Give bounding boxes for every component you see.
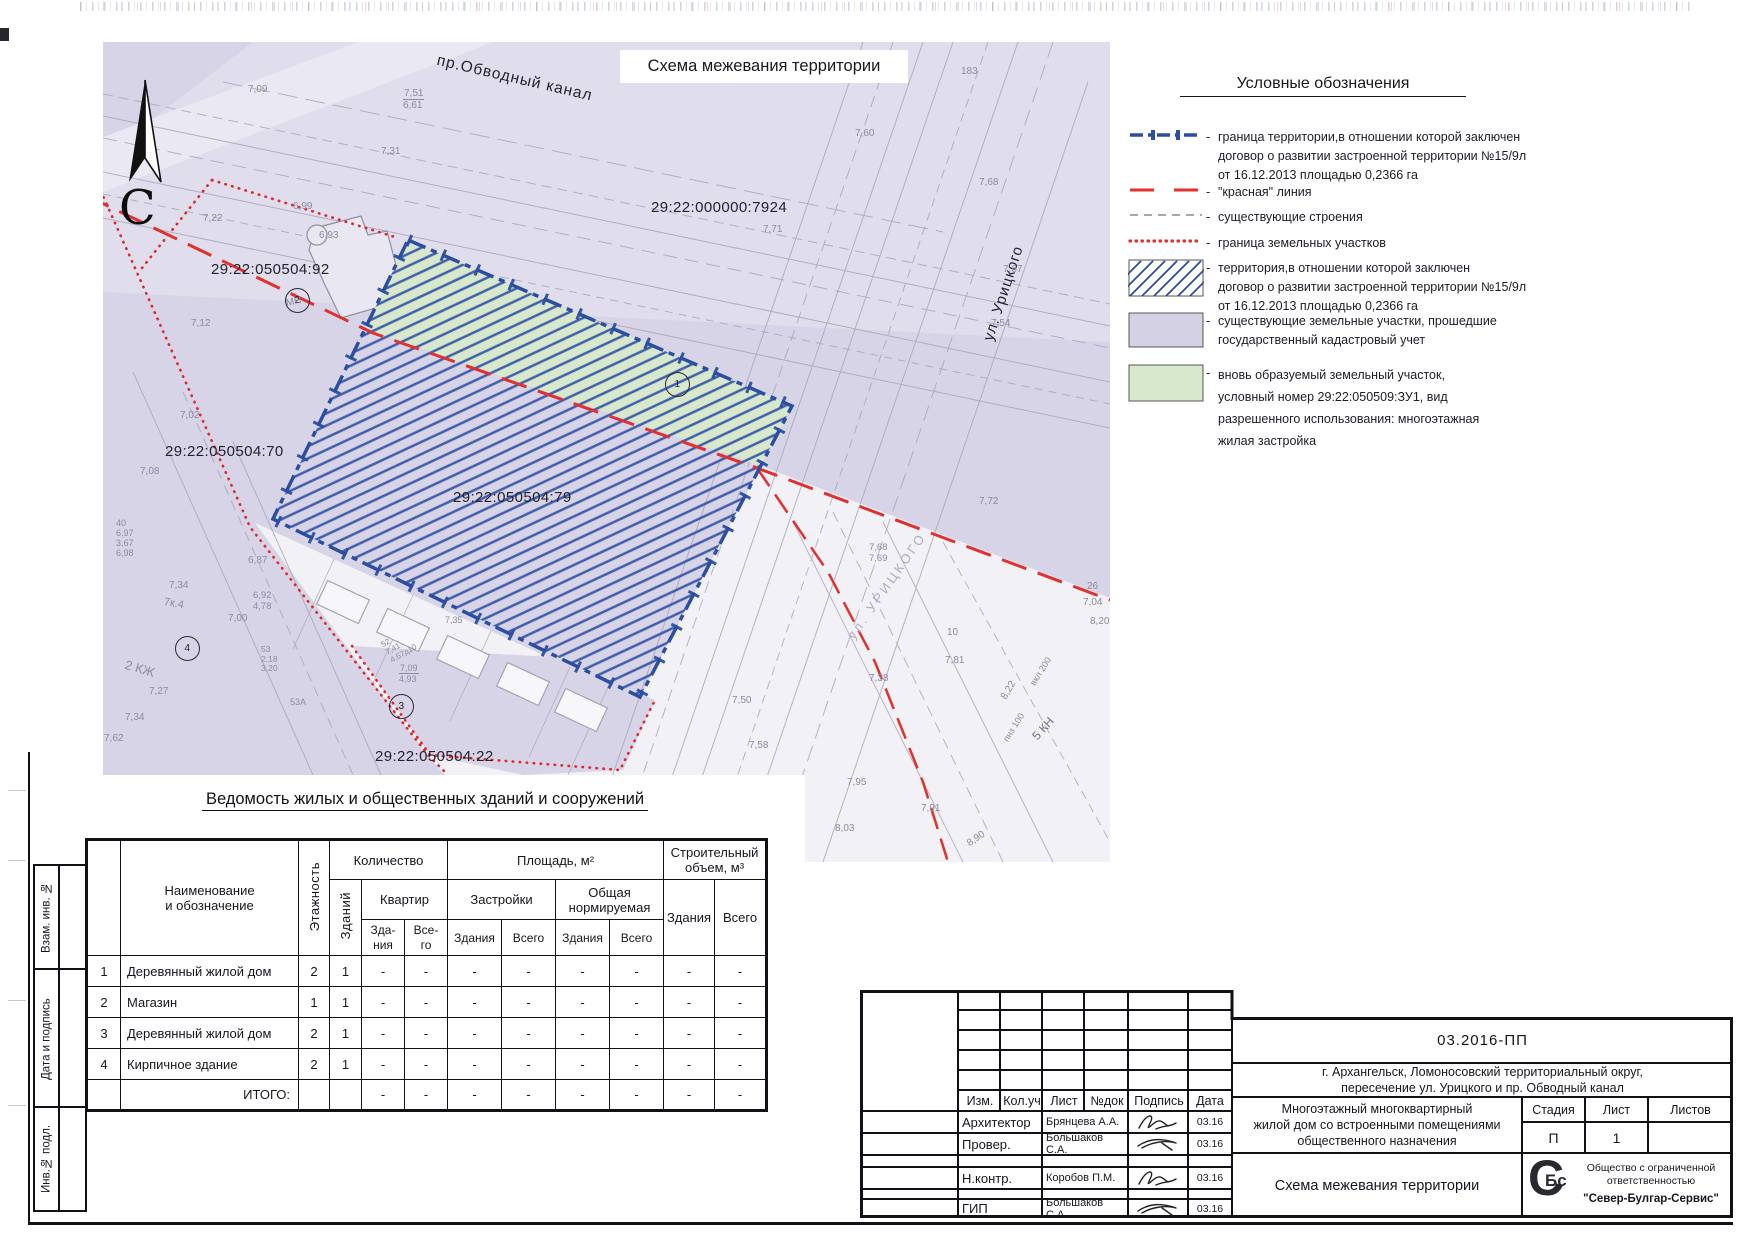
col-qty-header: Количество [330, 840, 448, 880]
map-label: 7,34 [169, 580, 188, 591]
table-cell: Деревянный жилой дом [121, 956, 299, 987]
table-cell: - [502, 956, 556, 987]
map-label: 7,54 [991, 318, 1010, 329]
col-area-header: Площадь, м² [448, 840, 664, 880]
signature-role: ГИП [962, 1199, 1040, 1218]
sheet-frame-left [28, 752, 30, 1224]
map-label: 8,03 [835, 823, 854, 834]
map-label: 29:22:050504:92 [211, 262, 330, 279]
signature-icon [1135, 1112, 1181, 1132]
signature-role: Архитектор [962, 1111, 1040, 1133]
revision-col-label: Изм. [960, 1090, 1000, 1111]
map-label: 6,93 [319, 230, 338, 241]
map-parcel-number: 1 [665, 372, 690, 397]
table-cell: - [405, 956, 448, 987]
table-cell: - [664, 1049, 715, 1080]
signature-name: Большаков С.А. [1046, 1199, 1126, 1218]
table-cell: 1 [330, 1049, 362, 1080]
signature-role: Провер. [962, 1133, 1040, 1155]
table-cell: - [715, 1018, 767, 1049]
margin-box-label: Взам. инв. № [35, 866, 58, 970]
signature-sig [1130, 1199, 1186, 1218]
table-cell: - [448, 1018, 502, 1049]
sheet-label: Лист [1585, 1097, 1648, 1122]
map-label: 183 [961, 66, 978, 77]
table-cell: - [405, 987, 448, 1018]
col-vol-bld-header: Здания [664, 880, 715, 956]
legend-dash: - [1206, 184, 1210, 199]
map-label: 7,62 [104, 733, 123, 744]
signature-icon [1135, 1134, 1181, 1154]
legend-symbol-hatch-icon [1128, 259, 1204, 302]
map-label: 7,094,93 [399, 663, 419, 684]
company-name: Общество с ограниченной ответственностью [1576, 1155, 1726, 1195]
map-label: 7,38 [869, 673, 888, 684]
map-label: 5 КН [1030, 715, 1057, 743]
margin-box: Инв.№ подл. [33, 1106, 87, 1212]
table-cell: - [448, 987, 502, 1018]
table-cell: Деревянный жилой дом [121, 1018, 299, 1049]
sheets-label: Листов [1648, 1097, 1733, 1122]
table-cell: - [362, 1049, 405, 1080]
signature-name [1046, 1155, 1126, 1167]
scan-noise-strip [80, 2, 1690, 11]
table-cell: - [610, 1080, 664, 1111]
table-cell: 1 [299, 987, 330, 1018]
map-label: 29:22:000000:7924 [651, 200, 787, 217]
map-label: 7,67 [1003, 264, 1022, 275]
map-label: 52 7,41 4,67д10 [380, 627, 419, 665]
table-cell: - [610, 956, 664, 987]
table-total-row: ИТОГО:-------- [87, 1080, 767, 1111]
table-cell: - [664, 956, 715, 987]
signature-sig [1130, 1111, 1186, 1133]
doc-number: 03.2016-ПП [1232, 1018, 1733, 1063]
map-label: 2 КЖ [123, 658, 156, 680]
map-label: 10 [947, 627, 958, 638]
revision-col-label: №док [1086, 1090, 1128, 1111]
legend-item-text: граница земельных участков [1218, 234, 1570, 253]
map-label: пр.Обводный канал [435, 52, 594, 105]
table-cell: Кирпичное здание [121, 1049, 299, 1080]
table-cell: 3 [87, 1018, 121, 1049]
object-location: г. Архангельск, Ломоносовский территориа… [1232, 1063, 1733, 1097]
map-parcel-number: 3 [389, 694, 414, 719]
drawing-sheet: 29:22:000000:792429:22:050504:9229:22:05… [0, 0, 1754, 1240]
col-norm-header: Общая нормируемая [556, 880, 664, 920]
map-label: 7,81 [945, 655, 964, 666]
signature-sig [1130, 1133, 1186, 1155]
map-label: 7,34 [125, 712, 144, 723]
col-name-header: Наименование и обозначение [121, 840, 299, 956]
table-cell: - [405, 1049, 448, 1080]
legend-dash: - [1206, 313, 1210, 328]
legend-symbol-boundary-blue-icon [1128, 128, 1204, 147]
signature-date: 03.16 [1190, 1167, 1230, 1189]
table-cell: Магазин [121, 987, 299, 1018]
table-cell [299, 1080, 330, 1111]
table-cell: 1 [330, 956, 362, 987]
map-label: 7,35 [445, 615, 463, 625]
map-label: 7,58 [749, 740, 768, 751]
stage-label: Стадия [1522, 1097, 1585, 1122]
margin-box: Взам. инв. № [33, 864, 87, 972]
map-label: 7,68 7,69 [869, 543, 888, 564]
table-cell: - [556, 987, 610, 1018]
signature-role [962, 1155, 1040, 1167]
table-cell: - [664, 1080, 715, 1111]
buildings-schedule-table: Наименование и обозначение Этажность Кол… [85, 838, 768, 1112]
signature-date [1190, 1189, 1230, 1199]
revision-col-label: Кол.уч [1002, 1090, 1042, 1111]
subcol-header: Всего [502, 920, 556, 956]
table-row: 4Кирпичное здание21-------- [87, 1049, 767, 1080]
map-label: 7,08 [140, 466, 159, 477]
signature-name: Большаков С.А. [1046, 1133, 1126, 1155]
subcol-header: Здания [448, 920, 502, 956]
table-row: 1Деревянный жилой дом21-------- [87, 956, 767, 987]
table-cell: - [664, 987, 715, 1018]
table-cell: - [610, 1018, 664, 1049]
map-label: 29:22:050504:79 [453, 490, 572, 507]
table-cell: 2 [299, 1049, 330, 1080]
sheets-value [1648, 1122, 1733, 1153]
legend-dash: - [1206, 365, 1210, 380]
table-cell: - [362, 956, 405, 987]
schedule-title: Ведомость жилых и общественных зданий и … [85, 790, 765, 809]
legend-symbol-green-icon [1128, 364, 1204, 407]
table-cell: 1 [330, 1018, 362, 1049]
map-label: 53 2,18 3,20 [261, 645, 278, 674]
table-cell: - [405, 1018, 448, 1049]
table-cell: 1 [87, 956, 121, 987]
north-letter: С [119, 180, 156, 236]
col-volume-header: Строительный объем, м³ [664, 840, 767, 880]
map-label: 7,04 [1083, 597, 1102, 608]
signature-sig [1130, 1189, 1186, 1199]
map-label: 29:22:050504:70 [165, 444, 284, 461]
signature-icon [1135, 1199, 1181, 1219]
signature-date [1190, 1155, 1230, 1167]
signature-name: Брянцева А.А. [1046, 1111, 1126, 1133]
signature-date: 03.16 [1190, 1111, 1230, 1133]
legend-item-text: существующие земельные участки, прошедши… [1218, 312, 1570, 350]
map-label: 7,02 [180, 410, 199, 421]
map-label: 6,92 4,78 [253, 591, 272, 612]
table-cell: 2 [87, 987, 121, 1018]
map-label: 8,90 [965, 829, 987, 849]
map-label: 7,27 [149, 686, 168, 697]
signature-sig [1130, 1155, 1186, 1167]
company-name-quoted: "Север-Булгар-Сервис" [1572, 1190, 1730, 1208]
table-cell: - [715, 1049, 767, 1080]
map-label: 40 6,97 3,67 6,98 [116, 518, 134, 558]
map-label: 8,22 [999, 679, 1018, 701]
table-cell: 4 [87, 1049, 121, 1080]
map-label: 7,09 [248, 84, 267, 95]
table-cell [330, 1080, 362, 1111]
table-cell: - [502, 1049, 556, 1080]
revision-col-label: Дата [1190, 1090, 1230, 1111]
subcol-header: Всего [610, 920, 664, 956]
margin-box-label: Инв.№ подл. [35, 1108, 58, 1210]
legend-dash: - [1206, 260, 1210, 275]
signature-icon [1135, 1168, 1181, 1188]
table-cell: - [362, 1080, 405, 1111]
table-cell [87, 1080, 121, 1111]
map-label: 7к.4 [163, 596, 185, 612]
margin-box: Дата и подпись [33, 968, 87, 1110]
map-label: 7,00 [228, 613, 247, 624]
table-cell: - [448, 956, 502, 987]
margin-box-label: Дата и подпись [35, 970, 58, 1108]
logo-letters-inner: Бс [1545, 1171, 1567, 1191]
table-cell: - [502, 1018, 556, 1049]
table-cell: - [715, 987, 767, 1018]
revision-col-label: Лист [1044, 1090, 1084, 1111]
stage-value: П [1522, 1122, 1585, 1153]
map-label: 7,12 [191, 318, 210, 329]
signature-role: Н.контр. [962, 1167, 1040, 1189]
map-label: 7,72 [979, 496, 998, 507]
table-cell: - [715, 1080, 767, 1111]
map-label-layer: 29:22:000000:792429:22:050504:9229:22:05… [103, 42, 1110, 862]
table-cell: - [556, 956, 610, 987]
subcol-header: Зда- ния [362, 920, 405, 956]
revision-col-label: Подпись [1130, 1090, 1188, 1111]
table-row: 2Магазин11-------- [87, 987, 767, 1018]
map-label: 8,20 [1090, 616, 1109, 627]
table-cell: 2 [299, 956, 330, 987]
map-label: 29:22:050504:22 [375, 749, 494, 766]
map-label: 26 [1087, 581, 1098, 592]
legend-title: Условные обозначения [1180, 75, 1466, 97]
table-cell: - [448, 1049, 502, 1080]
legend-symbol-red-dash-icon [1128, 183, 1204, 202]
legend-item-text: территория,в отношении которой заключенд… [1218, 259, 1570, 316]
sheet-content-title: Схема межевания территории [1234, 1153, 1520, 1218]
table-cell: - [664, 1018, 715, 1049]
title-block: 03.2016-ПП г. Архангельск, Ломоносовский… [860, 990, 1733, 1218]
map-label: 6,99 [293, 201, 312, 212]
company-logo: С Бс [1528, 1158, 1576, 1210]
sheet-value: 1 [1585, 1122, 1648, 1153]
map-parcel-number: 4 [175, 636, 200, 661]
map-label: 7,95 [847, 777, 866, 788]
map-label: 7,91 [921, 803, 940, 814]
legend-item-text: граница территории,в отношении которой з… [1218, 128, 1570, 185]
legend-dash: - [1206, 129, 1210, 144]
table-cell: 2 [299, 1018, 330, 1049]
project-name: Многоэтажный многоквартирный жилой дом с… [1234, 1097, 1520, 1153]
col-floors-header: Этажность [299, 840, 330, 956]
map-label: 7,71 [763, 224, 782, 235]
table-row: 3Деревянный жилой дом21-------- [87, 1018, 767, 1049]
table-cell: - [502, 987, 556, 1018]
map-label: 7,516,61 [403, 88, 424, 111]
table-cell: - [448, 1080, 502, 1111]
table-cell: - [610, 1049, 664, 1080]
table-cell: - [556, 1018, 610, 1049]
legend-symbol-red-dots-icon [1128, 234, 1204, 253]
legend-dash: - [1206, 209, 1210, 224]
signature-date: 03.16 [1190, 1199, 1230, 1218]
survey-map: 29:22:000000:792429:22:050504:9229:22:05… [103, 42, 1110, 862]
legend-item-text: вновь образуемый земельный участок,услов… [1218, 364, 1570, 452]
col-num-header [87, 840, 121, 956]
legend-item-text: "красная" линия [1218, 183, 1570, 202]
legend-symbol-gray-dash-icon [1128, 208, 1204, 227]
subcol-header: Здания [556, 920, 610, 956]
map-label: 7,31 [381, 146, 400, 157]
table-cell: - [715, 956, 767, 987]
map-label: пнз 100 [1001, 711, 1026, 743]
signature-name: Коробов П.М. [1046, 1167, 1126, 1189]
table-cell: 1 [330, 987, 362, 1018]
map-label: 7,68 [979, 177, 998, 188]
col-buildings-header: Зданий [330, 880, 362, 956]
map-label: вкл 200 [1028, 655, 1053, 687]
map-label: 7,50 [732, 695, 751, 706]
col-vol-tot-header: Всего [715, 880, 767, 956]
table-cell: - [556, 1080, 610, 1111]
map-label: 6,87 [248, 555, 267, 566]
table-cell: ИТОГО: [121, 1080, 299, 1111]
signature-role [962, 1189, 1040, 1199]
map-label: 53А [290, 697, 306, 707]
legend-item-text: существующие строения [1218, 208, 1570, 227]
col-apartments-header: Квартир [362, 880, 448, 920]
table-cell: - [405, 1080, 448, 1111]
col-builtup-header: Застройки [448, 880, 556, 920]
table-cell: - [362, 987, 405, 1018]
legend-symbol-lavender-icon [1128, 312, 1204, 353]
signature-sig [1130, 1167, 1186, 1189]
map-title: Схема межевания территории [620, 50, 908, 83]
table-cell: - [502, 1080, 556, 1111]
table-cell: - [556, 1049, 610, 1080]
subcol-header: Все- го [405, 920, 448, 956]
table-cell: - [610, 987, 664, 1018]
map-label: 7,22 [203, 213, 222, 224]
legend-dash: - [1206, 235, 1210, 250]
scan-artifact [0, 28, 9, 41]
signature-date: 03.16 [1190, 1133, 1230, 1155]
table-cell: - [362, 1018, 405, 1049]
map-label: 7,60 [855, 128, 874, 139]
